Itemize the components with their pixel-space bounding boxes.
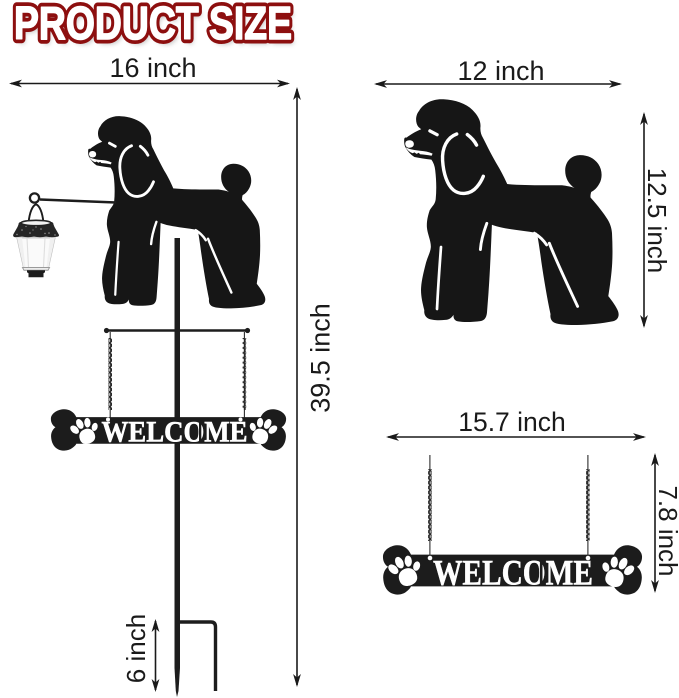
svg-text:7.8 inch: 7.8 inch — [653, 485, 679, 576]
svg-text:6 inch: 6 inch — [121, 614, 151, 683]
svg-text:12.5 inch: 12.5 inch — [642, 168, 672, 274]
svg-text:15.7 inch: 15.7 inch — [458, 407, 566, 437]
svg-text:12 inch: 12 inch — [457, 56, 544, 86]
svg-text:39.5 inch: 39.5 inch — [306, 303, 336, 413]
svg-text:WELCOME: WELCOME — [433, 553, 593, 593]
svg-text:PRODUCT SIZE: PRODUCT SIZE — [14, 0, 292, 49]
svg-text:WELCOME: WELCOME — [102, 416, 248, 449]
svg-text:16 inch: 16 inch — [109, 53, 196, 83]
